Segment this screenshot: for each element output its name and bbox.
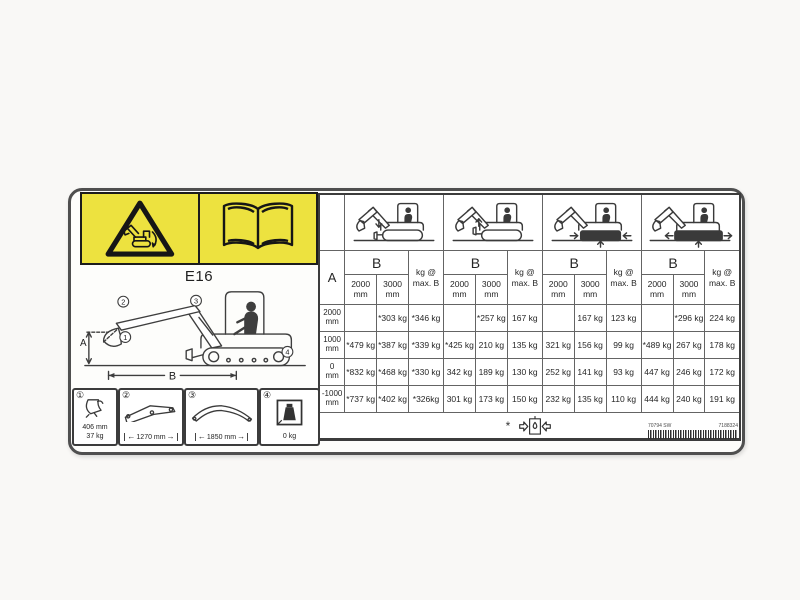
arrow-right-icon: → (237, 433, 245, 441)
capacity-cell: 224 kg (705, 305, 740, 332)
arrow-left-icon: ← (127, 433, 135, 441)
capacity-cell: *339 kg (409, 332, 444, 359)
capacity-cell (641, 305, 673, 332)
col-header-kg-max-b: kg @ max. B (507, 251, 542, 305)
excavator-blade-down-icon (345, 194, 444, 251)
barcode (648, 430, 738, 439)
col-header-kg-max-b: kg @ max. B (606, 251, 641, 305)
boom-icon (190, 403, 254, 422)
capacity-cell: *303 kg (377, 305, 409, 332)
capacity-cell: *346 kg (409, 305, 444, 332)
col-subheader: 2000 mm (641, 275, 673, 305)
capacity-cell: 444 kg (641, 386, 673, 413)
col-subheader: 3000 mm (574, 275, 606, 305)
capacity-cell: 99 kg (606, 332, 641, 359)
capacity-cell: 301 kg (444, 386, 476, 413)
arm-icon (123, 403, 179, 422)
row-label-height: 1000 mm (319, 332, 345, 359)
footnote-asterisk: * (506, 419, 511, 433)
read-manual-book-icon (215, 198, 301, 260)
capacity-cell: 252 kg (542, 359, 574, 386)
col-header-kg-max-b: kg @ max. B (409, 251, 444, 305)
dimension-b-label: B (169, 370, 176, 382)
col-subheader: 2000 mm (444, 275, 476, 305)
lift-capacity-table: ABkg @ max. BBkg @ max. BBkg @ max. BBkg… (318, 193, 741, 441)
capacity-cell: 240 kg (673, 386, 705, 413)
row-label-height: 2000 mm (319, 305, 345, 332)
callout-1-bucket: 1 (123, 333, 127, 342)
capacity-cell: *326kg (409, 386, 444, 413)
capacity-cell: 93 kg (606, 359, 641, 386)
spec-number-4: ④ (263, 390, 271, 401)
capacity-cell: 172 kg (705, 359, 740, 386)
row-label-height: 0 mm (319, 359, 345, 386)
spec-box-counterweight: ④ 0 kg (259, 388, 320, 446)
capacity-cell: 189 kg (475, 359, 507, 386)
col-subheader: 2000 mm (542, 275, 574, 305)
capacity-cell: 178 kg (705, 332, 740, 359)
capacity-cell: 110 kg (606, 386, 641, 413)
callout-4-tracks: 4 (285, 348, 289, 357)
spec-box-bucket: ① 406 mm 37 kg (72, 388, 118, 446)
capacity-cell (444, 305, 476, 332)
capacity-cell: *387 kg (377, 332, 409, 359)
row-label-height: -1000 mm (319, 386, 345, 413)
capacity-cell: *468 kg (377, 359, 409, 386)
arrow-left-icon: ← (198, 433, 206, 441)
col-header-a: A (319, 251, 345, 305)
arm-length-dim: ← 1270 mm → (124, 433, 177, 441)
capacity-cell: 447 kg (641, 359, 673, 386)
col-header-kg-max-b: kg @ max. B (705, 251, 740, 305)
attachment-spec-strip: ① 406 mm 37 kg ② (72, 388, 320, 446)
bucket-icon (82, 398, 108, 419)
excavator-tracks-retracted-icon (542, 194, 641, 251)
boom-length-dim: ← 1850 mm → (195, 433, 248, 441)
scanned-decal-page: { "page": { "model": "E16" }, "banner": … (0, 0, 800, 600)
col-header-b: B (641, 251, 705, 275)
bucket-weight: 37 kg (82, 433, 107, 441)
excavator-tracks-extended-icon (641, 194, 740, 251)
part-number-right: 7188324 (719, 424, 738, 429)
capacity-cell: 191 kg (705, 386, 740, 413)
arrow-right-icon: → (167, 433, 175, 441)
col-subheader: 3000 mm (377, 275, 409, 305)
capacity-cell: 123 kg (606, 305, 641, 332)
col-header-b: B (345, 251, 409, 275)
capacity-cell (345, 305, 377, 332)
capacity-cell: 246 kg (673, 359, 705, 386)
capacity-cell: *425 kg (444, 332, 476, 359)
capacity-cell (542, 305, 574, 332)
capacity-cell: 130 kg (507, 359, 542, 386)
col-subheader: 2000 mm (345, 275, 377, 305)
col-subheader: 3000 mm (673, 275, 705, 305)
capacity-cell: *257 kg (475, 305, 507, 332)
capacity-cell: 150 kg (507, 386, 542, 413)
capacity-cell: *832 kg (345, 359, 377, 386)
capacity-cell: *737 kg (345, 386, 377, 413)
callout-2-arm: 2 (121, 297, 125, 306)
warning-panel (82, 194, 198, 263)
spec-number-2: ② (122, 390, 130, 401)
footer-codes: 70794 SW 7188324 (648, 424, 738, 439)
capacity-cell: 321 kg (542, 332, 574, 359)
callout-3-boom: 3 (194, 296, 198, 305)
capacity-cell: 167 kg (574, 305, 606, 332)
capacity-cell: *479 kg (345, 332, 377, 359)
capacity-cell: *489 kg (641, 332, 673, 359)
capacity-cell: 210 kg (475, 332, 507, 359)
capacity-cell: 141 kg (574, 359, 606, 386)
col-header-b: B (542, 251, 606, 275)
hydraulic-capacity-limit-icon (517, 415, 553, 437)
tip-over-warning-icon (103, 198, 177, 260)
capacity-cell: *296 kg (673, 305, 705, 332)
capacity-cell: 135 kg (507, 332, 542, 359)
capacity-cell: 167 kg (507, 305, 542, 332)
spec-box-arm: ② ← 1270 mm → (118, 388, 184, 446)
bucket-width: 406 mm (82, 424, 107, 432)
capacity-cell: 135 kg (574, 386, 606, 413)
capacity-cell: *402 kg (377, 386, 409, 413)
capacity-cell: 267 kg (673, 332, 705, 359)
capacity-cell: 173 kg (475, 386, 507, 413)
part-number-left: 70794 SW (648, 424, 671, 429)
table-corner-empty (319, 194, 345, 251)
capacity-cell: *330 kg (409, 359, 444, 386)
capacity-cell: 342 kg (444, 359, 476, 386)
capacity-cell: 232 kg (542, 386, 574, 413)
counterweight-mass: 0 kg (283, 433, 296, 441)
spec-number-1: ① (76, 390, 84, 401)
manual-panel (198, 194, 316, 263)
col-header-b: B (444, 251, 508, 275)
spec-number-3: ③ (188, 390, 196, 401)
dimension-a-label: A (80, 338, 87, 349)
excavator-blade-up-icon (444, 194, 543, 251)
warning-banner (80, 192, 318, 265)
spec-box-boom: ③ ← 1850 mm → (184, 388, 259, 446)
lift-capacity-decal: E16 1 (68, 188, 745, 455)
counterweight-icon (276, 399, 303, 426)
col-subheader: 3000 mm (475, 275, 507, 305)
excavator-dimension-diagram: 1 2 3 4 A B (77, 283, 317, 399)
capacity-cell: 156 kg (574, 332, 606, 359)
